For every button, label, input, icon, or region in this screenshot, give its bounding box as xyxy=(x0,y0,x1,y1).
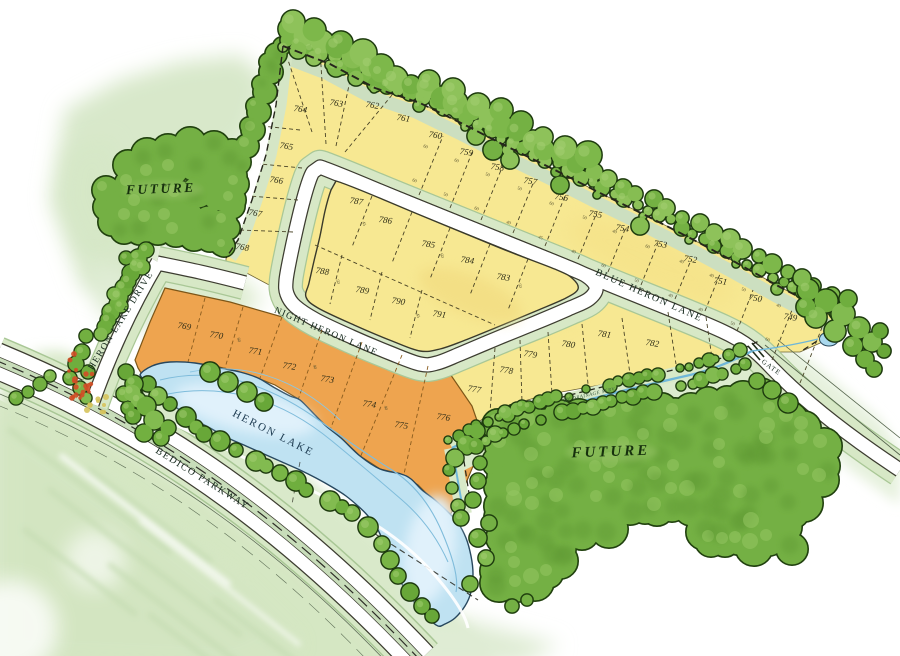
svg-text:767: 767 xyxy=(248,207,263,219)
svg-text:774: 774 xyxy=(362,398,377,410)
svg-text:775: 775 xyxy=(394,419,409,431)
svg-text:768: 768 xyxy=(235,241,250,253)
svg-text:782: 782 xyxy=(645,337,660,349)
svg-text:789: 789 xyxy=(355,284,370,296)
svg-text:770: 770 xyxy=(209,329,224,341)
svg-text:757: 757 xyxy=(523,175,538,187)
svg-text:780: 780 xyxy=(561,338,576,350)
svg-text:790: 790 xyxy=(391,295,406,307)
svg-text:763: 763 xyxy=(329,97,344,109)
svg-text:783: 783 xyxy=(496,271,511,283)
svg-text:765: 765 xyxy=(279,140,294,152)
svg-text:751: 751 xyxy=(713,275,728,287)
svg-text:750: 750 xyxy=(748,292,763,304)
svg-text:776: 776 xyxy=(436,411,451,423)
svg-text:769: 769 xyxy=(177,320,192,332)
svg-text:788: 788 xyxy=(315,265,330,277)
svg-text:791: 791 xyxy=(432,308,447,320)
svg-text:762: 762 xyxy=(365,99,380,111)
svg-text:778: 778 xyxy=(499,364,514,376)
svg-text:FUTURE: FUTURE xyxy=(125,180,196,197)
svg-text:786: 786 xyxy=(378,214,393,226)
svg-text:753: 753 xyxy=(653,238,668,250)
svg-text:FUTURE: FUTURE xyxy=(570,443,650,462)
svg-text:749: 749 xyxy=(783,311,798,323)
svg-text:772: 772 xyxy=(282,360,297,372)
svg-text:785: 785 xyxy=(421,238,436,250)
svg-text:752: 752 xyxy=(683,253,698,265)
svg-text:781: 781 xyxy=(597,328,612,340)
svg-text:760: 760 xyxy=(428,129,443,141)
svg-text:754: 754 xyxy=(615,222,630,234)
svg-text:761: 761 xyxy=(396,112,411,124)
svg-text:777: 777 xyxy=(467,383,482,395)
svg-text:787: 787 xyxy=(349,195,364,207)
svg-text:755: 755 xyxy=(588,208,603,220)
svg-text:773: 773 xyxy=(320,373,335,385)
svg-text:759: 759 xyxy=(459,146,474,158)
svg-text:784: 784 xyxy=(460,254,475,266)
svg-text:764: 764 xyxy=(293,103,308,115)
svg-text:771: 771 xyxy=(248,345,263,357)
svg-text:766: 766 xyxy=(269,174,284,186)
svg-text:779: 779 xyxy=(523,348,538,360)
